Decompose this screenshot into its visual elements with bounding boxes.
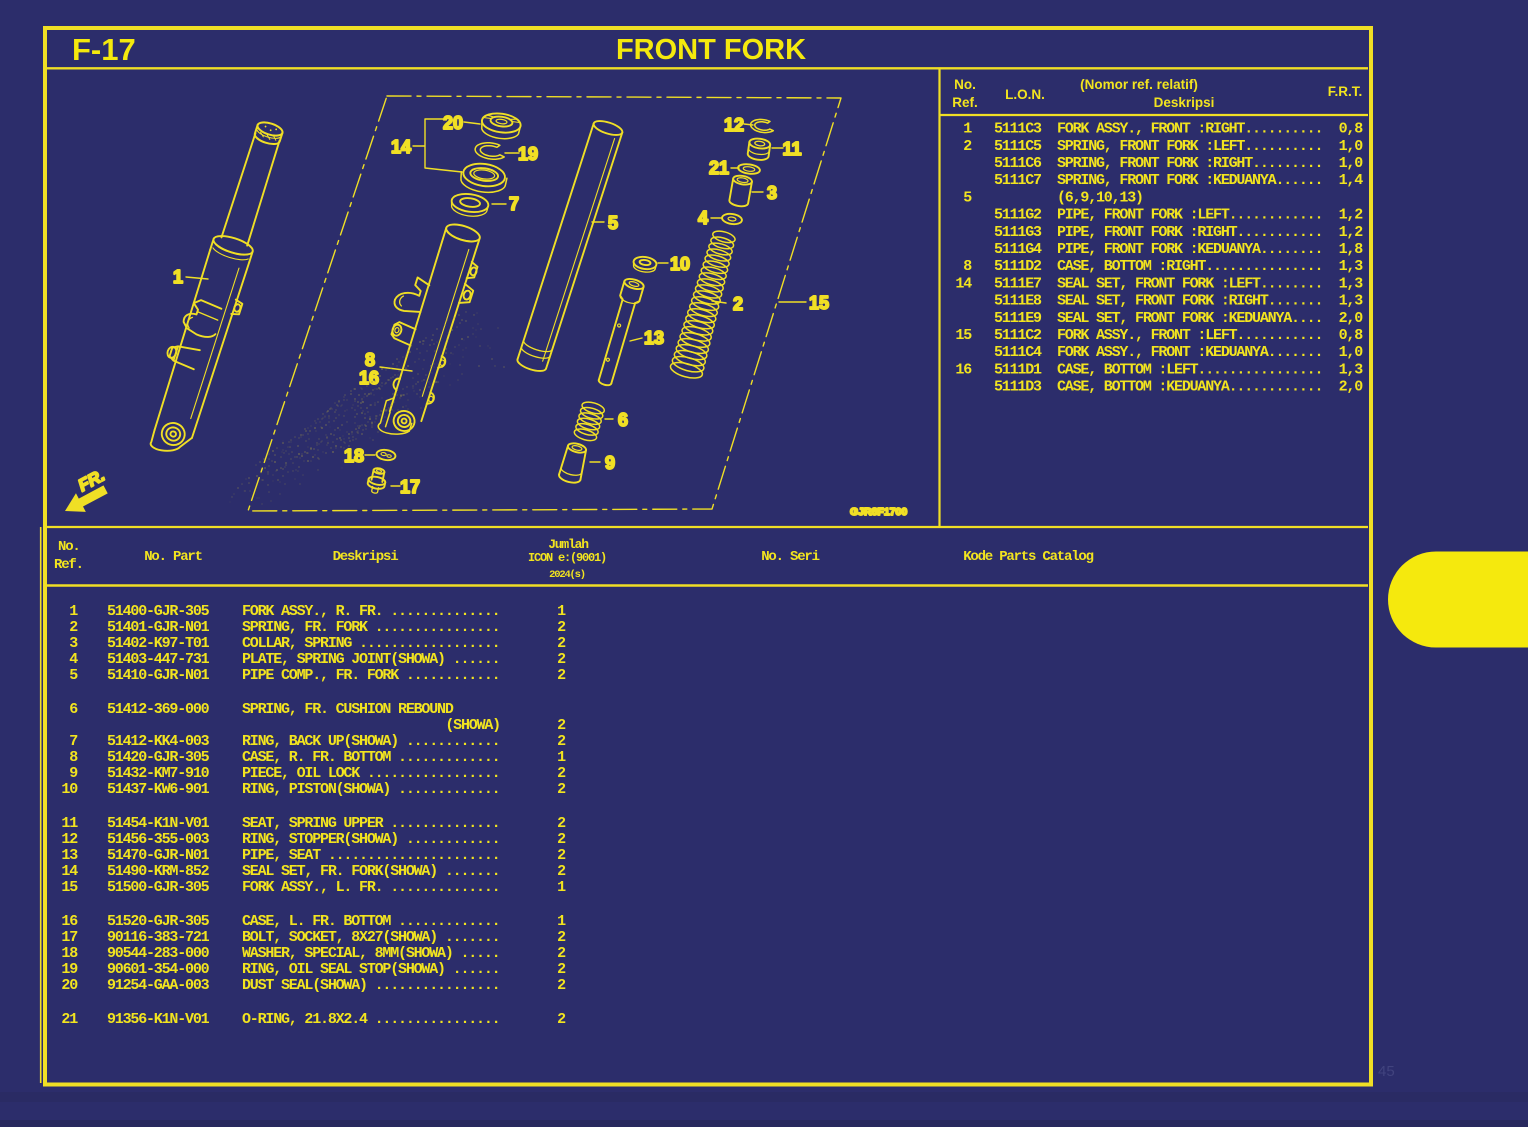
svg-text:2024(s): 2024(s) [549, 569, 585, 581]
svg-text:PIPE, FRONT FORK :LEFT........: PIPE, FRONT FORK :LEFT............ [1057, 207, 1322, 224]
svg-text:90116-383-721: 90116-383-721 [107, 929, 210, 946]
svg-text:CASE, BOTTOM :KEDUANYA........: CASE, BOTTOM :KEDUANYA............ [1057, 379, 1322, 396]
svg-text:1: 1 [69, 603, 78, 620]
svg-text:19: 19 [61, 961, 78, 978]
svg-text:51410-GJR-N01: 51410-GJR-N01 [107, 667, 210, 684]
svg-text:12: 12 [61, 831, 78, 848]
svg-text:Deskripsi: Deskripsi [1154, 95, 1215, 110]
svg-text:RING, OIL SEAL STOP(SHOWA) ...: RING, OIL SEAL STOP(SHOWA) ...... [242, 961, 499, 978]
svg-text:6: 6 [618, 410, 628, 430]
svg-text:F.R.T.: F.R.T. [1328, 84, 1363, 99]
svg-text:2: 2 [557, 961, 566, 978]
svg-text:BOLT, SOCKET, 8X27(SHOWA) ....: BOLT, SOCKET, 8X27(SHOWA) ....... [242, 929, 499, 946]
svg-text:3: 3 [767, 183, 777, 203]
svg-text:18: 18 [344, 446, 364, 466]
svg-text:2: 2 [557, 815, 566, 832]
svg-text:51456-355-003: 51456-355-003 [107, 831, 210, 848]
svg-text:5: 5 [963, 189, 972, 206]
svg-text:9: 9 [69, 765, 78, 782]
svg-text:17: 17 [61, 929, 77, 946]
svg-text:SEAL SET, FRONT FORK :KEDUANYA: SEAL SET, FRONT FORK :KEDUANYA.... [1057, 310, 1322, 327]
svg-text:2: 2 [557, 781, 566, 798]
svg-text:51420-GJR-305: 51420-GJR-305 [107, 749, 210, 766]
svg-text:RING, STOPPER(SHOWA) .........: RING, STOPPER(SHOWA) ............ [242, 831, 499, 848]
svg-text:21: 21 [61, 1011, 78, 1028]
svg-text:PIECE, OIL LOCK ..............: PIECE, OIL LOCK ................. [242, 765, 499, 782]
svg-text:(SHOWA): (SHOWA) [445, 717, 500, 734]
svg-text:12: 12 [724, 115, 744, 135]
svg-text:21: 21 [709, 158, 729, 178]
svg-text:1: 1 [557, 749, 566, 766]
svg-text:GJR8F1700: GJR8F1700 [850, 506, 907, 518]
svg-text:1: 1 [557, 603, 566, 620]
svg-text:51437-KW6-901: 51437-KW6-901 [107, 781, 210, 798]
svg-text:PIPE, SEAT ...................: PIPE, SEAT ...................... [242, 847, 499, 864]
svg-text:5111C3: 5111C3 [994, 121, 1042, 138]
svg-text:14: 14 [61, 863, 78, 880]
svg-text:RING, PISTON(SHOWA) ..........: RING, PISTON(SHOWA) ............. [242, 781, 499, 798]
svg-text:15: 15 [61, 879, 78, 896]
svg-text:L.O.N.: L.O.N. [1005, 87, 1045, 102]
svg-text:90601-354-000: 90601-354-000 [107, 961, 210, 978]
svg-text:SEAL SET, FRONT FORK :LEFT....: SEAL SET, FRONT FORK :LEFT........ [1057, 275, 1322, 292]
svg-text:FRONT FORK: FRONT FORK [616, 34, 806, 66]
svg-text:6: 6 [69, 701, 78, 718]
svg-text:CASE, R. FR. BOTTOM ..........: CASE, R. FR. BOTTOM ............. [242, 749, 499, 766]
svg-text:14: 14 [955, 275, 972, 292]
svg-text:10: 10 [670, 254, 690, 274]
svg-text:SEAT, SPRING UPPER ...........: SEAT, SPRING UPPER .............. [242, 815, 499, 832]
svg-text:51412-369-000: 51412-369-000 [107, 701, 210, 718]
svg-text:SPRING, FRONT FORK :KEDUANYA..: SPRING, FRONT FORK :KEDUANYA...... [1057, 172, 1322, 189]
svg-text:2,0: 2,0 [1339, 379, 1364, 396]
svg-text:1,2: 1,2 [1339, 207, 1364, 224]
svg-text:SPRING, FR. FORK .............: SPRING, FR. FORK ................ [242, 619, 499, 636]
svg-text:PIPE COMP., FR. FORK .........: PIPE COMP., FR. FORK ............ [242, 667, 499, 684]
svg-text:SPRING, FRONT FORK :RIGHT.....: SPRING, FRONT FORK :RIGHT......... [1057, 155, 1322, 172]
svg-text:2: 2 [557, 945, 566, 962]
svg-text:2: 2 [557, 667, 566, 684]
svg-text:CASE, L. FR. BOTTOM ..........: CASE, L. FR. BOTTOM ............. [242, 913, 499, 930]
svg-text:5111C7: 5111C7 [994, 172, 1041, 189]
svg-text:11: 11 [782, 139, 801, 159]
svg-text:13: 13 [61, 847, 78, 864]
svg-text:17: 17 [400, 477, 420, 497]
svg-text:FORK ASSY., R. FR. ...........: FORK ASSY., R. FR. .............. [242, 603, 499, 620]
svg-text:2: 2 [69, 619, 78, 636]
svg-text:(6,9,10,13): (6,9,10,13) [1057, 189, 1143, 206]
svg-text:51500-GJR-305: 51500-GJR-305 [107, 879, 210, 896]
svg-text:51470-GJR-N01: 51470-GJR-N01 [107, 847, 210, 864]
svg-text:2: 2 [557, 635, 566, 652]
svg-text:7: 7 [69, 733, 77, 750]
svg-text:5111G4: 5111G4 [994, 241, 1042, 258]
svg-text:14: 14 [391, 137, 411, 157]
svg-text:51520-GJR-305: 51520-GJR-305 [107, 913, 210, 930]
svg-text:51454-K1N-V01: 51454-K1N-V01 [107, 815, 210, 832]
svg-text:FORK ASSY., FRONT :LEFT.......: FORK ASSY., FRONT :LEFT........... [1057, 327, 1322, 344]
svg-text:5111E7: 5111E7 [994, 275, 1041, 292]
svg-text:16: 16 [955, 361, 972, 378]
svg-text:1: 1 [173, 267, 183, 287]
svg-text:15: 15 [809, 293, 829, 313]
svg-text:5111D1: 5111D1 [994, 361, 1042, 378]
svg-text:51432-KM7-910: 51432-KM7-910 [107, 765, 210, 782]
svg-text:51490-KRM-852: 51490-KRM-852 [107, 863, 210, 880]
svg-text:5111G3: 5111G3 [994, 224, 1042, 241]
svg-text:5111G2: 5111G2 [994, 207, 1042, 224]
svg-text:1,8: 1,8 [1339, 241, 1364, 258]
svg-text:1,3: 1,3 [1339, 275, 1364, 292]
svg-text:8: 8 [365, 350, 375, 370]
svg-text:51412-KK4-003: 51412-KK4-003 [107, 733, 210, 750]
svg-text:F-17: F-17 [72, 32, 136, 67]
svg-text:Ref.: Ref. [952, 95, 978, 110]
svg-text:2: 2 [557, 929, 566, 946]
svg-text:COLLAR, SPRING ...............: COLLAR, SPRING .................. [242, 635, 499, 652]
svg-text:5: 5 [69, 667, 78, 684]
svg-text:45: 45 [1378, 1063, 1395, 1080]
svg-text:8: 8 [963, 258, 972, 275]
svg-text:2: 2 [557, 847, 566, 864]
svg-text:5111C5: 5111C5 [994, 138, 1042, 155]
svg-text:No.: No. [58, 539, 80, 555]
svg-text:5111D2: 5111D2 [994, 258, 1042, 275]
svg-text:2: 2 [963, 138, 972, 155]
svg-text:2,0: 2,0 [1339, 310, 1364, 327]
svg-text:51403-447-731: 51403-447-731 [107, 651, 210, 668]
svg-text:No.: No. [954, 77, 976, 92]
svg-text:1,0: 1,0 [1339, 138, 1364, 155]
svg-text:1,3: 1,3 [1339, 258, 1364, 275]
svg-text:1: 1 [557, 913, 566, 930]
svg-text:DUST SEAL(SHOWA) .............: DUST SEAL(SHOWA) ................ [242, 977, 499, 994]
svg-text:CASE, BOTTOM :RIGHT...........: CASE, BOTTOM :RIGHT............... [1057, 258, 1322, 275]
svg-text:5111C2: 5111C2 [994, 327, 1042, 344]
svg-text:WASHER, SPECIAL, 8MM(SHOWA) ..: WASHER, SPECIAL, 8MM(SHOWA) ..... [242, 945, 499, 962]
svg-text:10: 10 [61, 781, 78, 798]
svg-text:7: 7 [509, 194, 519, 214]
svg-text:18: 18 [61, 945, 78, 962]
svg-text:No. Seri: No. Seri [761, 549, 819, 565]
svg-text:4: 4 [69, 651, 78, 668]
svg-text:90544-283-000: 90544-283-000 [107, 945, 210, 962]
svg-text:CASE, BOTTOM :LEFT............: CASE, BOTTOM :LEFT................ [1057, 361, 1322, 378]
svg-text:RING, BACK UP(SHOWA) .........: RING, BACK UP(SHOWA) ............ [242, 733, 499, 750]
svg-text:PIPE, FRONT FORK :RIGHT.......: PIPE, FRONT FORK :RIGHT........... [1057, 224, 1322, 241]
svg-text:SEAL SET, FRONT FORK :RIGHT...: SEAL SET, FRONT FORK :RIGHT....... [1057, 293, 1322, 310]
svg-text:FORK ASSY., FRONT :KEDUANYA...: FORK ASSY., FRONT :KEDUANYA....... [1057, 344, 1322, 361]
svg-text:FORK ASSY., L. FR. ...........: FORK ASSY., L. FR. .............. [242, 879, 499, 896]
svg-text:2: 2 [557, 1011, 566, 1028]
svg-text:Jumlah: Jumlah [548, 537, 589, 552]
svg-text:2: 2 [557, 619, 566, 636]
svg-text:15: 15 [955, 327, 972, 344]
svg-text:51400-GJR-305: 51400-GJR-305 [107, 603, 210, 620]
svg-text:8: 8 [69, 749, 78, 766]
svg-text:5111E9: 5111E9 [994, 310, 1042, 327]
svg-text:0,8: 0,8 [1339, 121, 1364, 138]
svg-text:No. Part: No. Part [144, 549, 202, 565]
svg-text:0,8: 0,8 [1339, 327, 1364, 344]
svg-text:(Nomor ref. relatif): (Nomor ref. relatif) [1080, 77, 1198, 92]
svg-text:91356-K1N-V01: 91356-K1N-V01 [107, 1011, 210, 1028]
svg-text:2: 2 [557, 651, 566, 668]
svg-text:20: 20 [443, 113, 463, 133]
svg-text:5111D3: 5111D3 [994, 379, 1042, 396]
svg-text:FORK ASSY., FRONT :RIGHT......: FORK ASSY., FRONT :RIGHT.......... [1057, 121, 1322, 138]
svg-text:ICON e:(9001): ICON e:(9001) [528, 551, 606, 565]
svg-text:5111C6: 5111C6 [994, 155, 1042, 172]
svg-text:1,0: 1,0 [1339, 344, 1364, 361]
svg-text:2: 2 [557, 831, 566, 848]
svg-text:2: 2 [557, 863, 566, 880]
svg-text:1: 1 [557, 879, 566, 896]
svg-text:1: 1 [963, 121, 972, 138]
svg-text:5: 5 [608, 213, 618, 233]
svg-text:2: 2 [557, 765, 566, 782]
svg-text:PLATE, SPRING JOINT(SHOWA) ...: PLATE, SPRING JOINT(SHOWA) ...... [242, 651, 499, 668]
svg-text:2: 2 [733, 294, 743, 314]
svg-text:13: 13 [644, 328, 664, 348]
svg-text:1,2: 1,2 [1339, 224, 1364, 241]
svg-text:SPRING, FRONT FORK :LEFT......: SPRING, FRONT FORK :LEFT.......... [1057, 138, 1322, 155]
svg-text:1,3: 1,3 [1339, 361, 1364, 378]
svg-text:Deskripsi: Deskripsi [333, 549, 399, 565]
svg-text:1,4: 1,4 [1339, 172, 1364, 189]
svg-text:Kode Parts Catalog: Kode Parts Catalog [963, 549, 1093, 565]
svg-text:1,0: 1,0 [1339, 155, 1364, 172]
svg-text:3: 3 [69, 635, 78, 652]
svg-text:5111C4: 5111C4 [994, 344, 1042, 361]
svg-text:O-RING, 21.8X2.4 .............: O-RING, 21.8X2.4 ................ [242, 1011, 499, 1028]
svg-text:4: 4 [698, 208, 708, 228]
svg-text:2: 2 [557, 717, 566, 734]
svg-text:5111E8: 5111E8 [994, 293, 1042, 310]
svg-text:Ref.: Ref. [54, 557, 83, 573]
svg-text:9: 9 [605, 453, 615, 473]
svg-text:SEAL SET, FR. FORK(SHOWA) ....: SEAL SET, FR. FORK(SHOWA) ....... [242, 863, 499, 880]
svg-text:2: 2 [557, 977, 566, 994]
svg-text:51401-GJR-N01: 51401-GJR-N01 [107, 619, 210, 636]
svg-text:11: 11 [61, 815, 78, 832]
svg-text:19: 19 [518, 144, 538, 164]
svg-text:51402-K97-T01: 51402-K97-T01 [107, 635, 210, 652]
svg-text:20: 20 [61, 977, 78, 994]
svg-text:91254-GAA-003: 91254-GAA-003 [107, 977, 210, 994]
svg-text:2: 2 [557, 733, 566, 750]
svg-text:SPRING, FR. CUSHION REBOUND: SPRING, FR. CUSHION REBOUND [242, 701, 454, 718]
svg-text:1,3: 1,3 [1339, 293, 1364, 310]
svg-text:PIPE, FRONT FORK :KEDUANYA....: PIPE, FRONT FORK :KEDUANYA........ [1057, 241, 1322, 258]
svg-text:16: 16 [61, 913, 78, 930]
